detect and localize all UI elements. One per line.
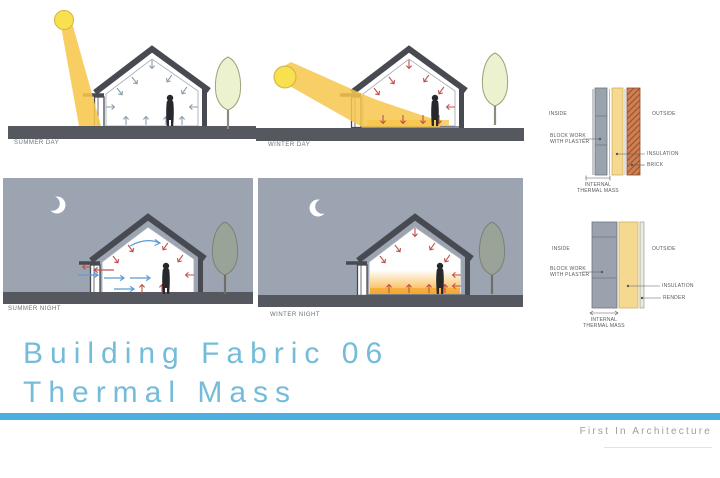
label-inside: INSIDE — [549, 111, 567, 117]
label-outside: OUTSIDE — [652, 246, 676, 252]
scene-label-summer-day: SUMMER DAY — [14, 140, 59, 147]
wall-detail-1: INSIDE OUTSIDE BLOCK WORK WITH PLASTER I… — [540, 80, 715, 200]
wall-detail-2: INSIDE OUTSIDE BLOCK WORK WITH PLASTER I… — [540, 212, 715, 334]
label-insulation: INSULATION — [662, 283, 694, 289]
label-blockwork-2: WITH PLASTER — [550, 272, 589, 278]
dimension-bracket — [586, 176, 610, 181]
tree-icon — [215, 57, 240, 129]
ground — [256, 128, 524, 141]
label-dim-2: THERMAL MASS — [570, 188, 626, 194]
accent-bar — [0, 413, 720, 420]
label-dim-2: THERMAL MASS — [576, 323, 632, 329]
warm-floor — [370, 288, 460, 294]
brand-underline — [604, 447, 712, 448]
blockwork-layer — [592, 222, 617, 308]
sun-beam — [59, 15, 101, 126]
slide-title-line1: Building Fabric 06 — [23, 334, 389, 373]
tree-icon — [482, 53, 507, 125]
slide-title-line2: Thermal Mass — [23, 373, 389, 412]
ground — [3, 292, 253, 304]
ground — [258, 295, 523, 307]
brand-text: First In Architecture — [580, 426, 712, 437]
scene-label-winter-day: WINTER DAY — [268, 142, 310, 149]
scene-label-summer-night: SUMMER NIGHT — [8, 306, 61, 313]
label-brick: BRICK — [647, 162, 663, 168]
blockwork-layer — [595, 88, 607, 175]
diagram-winter-day — [256, 0, 524, 165]
label-inside: INSIDE — [552, 246, 570, 252]
diagram-summer-night — [3, 178, 253, 306]
dimension-arrow — [590, 311, 618, 315]
slide-title: Building Fabric 06 Thermal Mass — [23, 334, 389, 412]
label-render: RENDER — [663, 295, 685, 301]
diagram-summer-day — [0, 0, 256, 160]
label-insulation: INSULATION — [647, 151, 679, 157]
sun-icon — [274, 66, 296, 88]
sun-icon — [55, 11, 74, 30]
scene-label-winter-night: WINTER NIGHT — [270, 312, 320, 319]
diagram-winter-night — [258, 178, 523, 310]
label-outside: OUTSIDE — [652, 111, 676, 117]
insulation-layer — [619, 222, 638, 308]
insulation-layer — [612, 88, 623, 175]
ground — [8, 126, 256, 139]
label-blockwork-2: WITH PLASTER — [550, 139, 589, 145]
render-layer — [640, 222, 644, 308]
